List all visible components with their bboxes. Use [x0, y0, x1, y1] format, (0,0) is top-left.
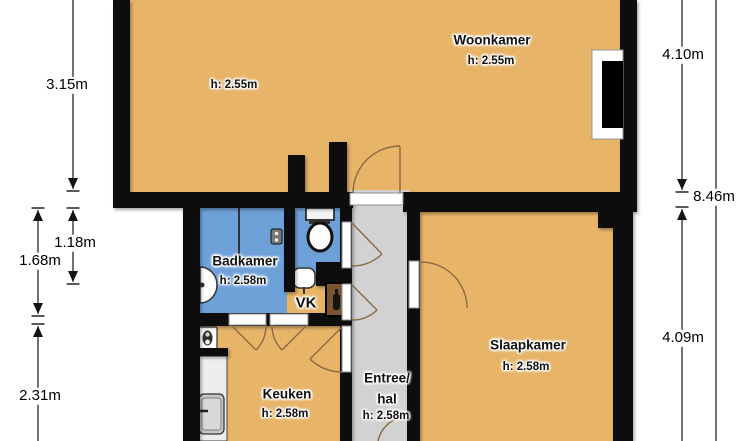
water-heater-knob-bottom-icon	[205, 339, 210, 344]
standpipe-icon	[333, 294, 340, 310]
floorplan: Woonkamer h: 2.55m h: 2.55m Badkamer h: …	[0, 0, 750, 441]
dimension-label-1-68: 1.68m	[17, 253, 63, 270]
dim-arrow-down	[677, 179, 687, 190]
threshold-slaapkamer	[409, 261, 419, 308]
threshold-keuken	[342, 326, 351, 372]
threshold-badkamer	[229, 314, 266, 325]
dim-arrow-up	[33, 210, 43, 221]
woonkamer-height-label: h: 2.55m	[468, 55, 515, 67]
threshold-toilet	[342, 222, 351, 268]
hand-basin-icon	[293, 268, 315, 288]
wall-slaapkamer-corner-step	[598, 212, 615, 228]
woonkamer-height-label-left: h: 2.55m	[211, 79, 258, 91]
meter-cabinet	[326, 283, 344, 316]
wall-chimney-stub-left	[288, 155, 305, 208]
wall-slaapkamer-right	[613, 192, 633, 441]
badkamer-height-label: h: 2.58m	[220, 275, 267, 287]
dimension-label-4-10: 4.10m	[660, 47, 706, 64]
entree-height-label: h: 2.58m	[363, 410, 410, 422]
dimension-label-2-31: 2.31m	[17, 388, 63, 405]
washbasin-tap-icon	[200, 283, 205, 288]
woonkamer-floor	[126, 0, 626, 196]
keuken-height-label: h: 2.58m	[262, 408, 309, 420]
wall-niche	[592, 50, 623, 139]
toilet-bowl-icon	[308, 223, 332, 251]
wall-badkamer-toilet-divider	[284, 208, 295, 292]
vk-label: VK	[296, 295, 317, 312]
dimension-label-3-15: 3.15m	[44, 77, 90, 94]
kitchen-sink-basin	[202, 398, 221, 430]
wall-slaapkamer-top	[403, 192, 637, 212]
slaapkamer-label: Slaapkamer	[490, 338, 566, 353]
dim-arrow-up	[33, 326, 43, 337]
keuken-label: Keuken	[263, 387, 312, 402]
slaapkamer-floor	[415, 204, 617, 441]
threshold-meter-cabinet	[342, 284, 351, 320]
dimension-label-4-09: 4.09m	[660, 330, 706, 347]
dim-arrow-up	[677, 209, 687, 220]
slaapkamer-height-label: h: 2.58m	[503, 361, 550, 373]
threshold-vk	[270, 314, 308, 325]
niche-flue-block	[602, 61, 623, 128]
dimension-label-1-18: 1.18m	[52, 235, 98, 252]
wall-counter-ledge	[195, 348, 228, 356]
entree-label-line2: hal	[377, 392, 397, 407]
toilet-tank-icon	[306, 208, 334, 220]
threshold-woonkamer	[350, 193, 403, 205]
entree-label-line1: Entree/	[364, 371, 410, 386]
dimension-label-8-46: 8.46m	[691, 189, 737, 206]
badkamer-label: Badkamer	[212, 254, 277, 269]
wall-woonkamer-left	[113, 0, 130, 208]
standpipe-neck-icon	[335, 289, 338, 295]
water-heater-knob-top-icon	[205, 332, 209, 336]
dim-arrow-down	[68, 271, 78, 282]
dim-arrow-up	[68, 210, 78, 221]
dim-arrow-down	[33, 303, 43, 314]
wall-woonkamer-bottom	[113, 192, 353, 208]
shower-mixer-knob1-icon	[275, 232, 279, 236]
woonkamer-label: Woonkamer	[453, 33, 530, 48]
shower-mixer-knob2-icon	[275, 238, 279, 242]
wall-hal-right	[407, 198, 420, 441]
dim-arrow-down	[68, 178, 78, 189]
